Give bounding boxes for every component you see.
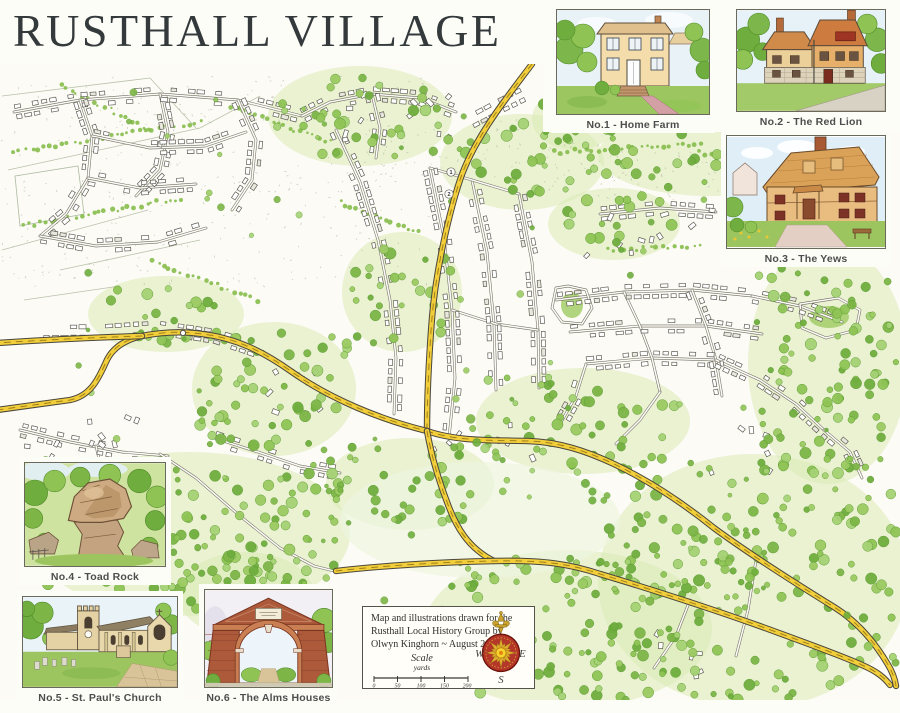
- inset-caption-the-yews: No.3 - The Yews: [726, 249, 886, 265]
- scale-unit: yards: [371, 664, 473, 672]
- inset-alms-houses: No.6 - The Alms Houses: [199, 584, 338, 706]
- compass-south-label: S: [498, 674, 504, 686]
- compass-west-label: W: [475, 648, 485, 660]
- map-marker-2-label: 2: [447, 192, 450, 198]
- scale-tick-0: 0: [373, 684, 376, 690]
- compass-rose: W E S: [473, 610, 529, 686]
- credit-box: Map and illustrations drawn for the Rust…: [362, 606, 535, 689]
- inset-the-yews: No.3 - The Yews: [721, 130, 891, 267]
- compass-east-label: E: [518, 648, 526, 660]
- alms-houses-illustration: [204, 589, 333, 688]
- map-marker-2: 2: [445, 190, 453, 198]
- inset-caption-red-lion: No.2 - The Red Lion: [736, 112, 886, 128]
- inset-caption-alms-houses: No.6 - The Alms Houses: [204, 688, 333, 704]
- home-farm-illustration: [556, 9, 710, 115]
- page-title: RUSTHALL VILLAGE: [13, 2, 573, 60]
- scale-tick-3: 150: [440, 684, 449, 690]
- map-marker-1-label: 1: [449, 170, 452, 176]
- st-pauls-church-illustration: [22, 596, 178, 688]
- inset-toad-rock: No.4 - Toad Rock: [19, 457, 171, 585]
- toad-rock-illustration: [24, 462, 166, 567]
- scale-tick-2: 100: [417, 684, 426, 690]
- scale-bar: Scale yards 0 50 100 150 200: [371, 654, 473, 689]
- scale-tick-1: 50: [395, 684, 401, 690]
- inset-caption-home-farm: No.1 - Home Farm: [556, 115, 710, 131]
- scale-bar-graphic: 0 50 100 150 200: [371, 673, 473, 689]
- inset-red-lion: No.2 - The Red Lion: [731, 4, 891, 130]
- fleur-de-lis-icon: [493, 611, 510, 633]
- inset-caption-toad-rock: No.4 - Toad Rock: [24, 567, 166, 583]
- mini-roundabout: [180, 330, 185, 335]
- map-marker-1: 1: [447, 168, 455, 176]
- scale-tick-4: 200: [463, 684, 472, 690]
- the-yews-illustration: [726, 135, 886, 249]
- red-lion-illustration: [736, 9, 886, 112]
- rusthall-village-map-poster: 1 2 RUSTHALL VILLAGE: [0, 0, 900, 713]
- inset-home-farm: No.1 - Home Farm: [551, 4, 715, 133]
- inset-st-pauls-church: No.5 - St. Paul's Church: [17, 591, 183, 706]
- inset-caption-st-pauls-church: No.5 - St. Paul's Church: [22, 688, 178, 704]
